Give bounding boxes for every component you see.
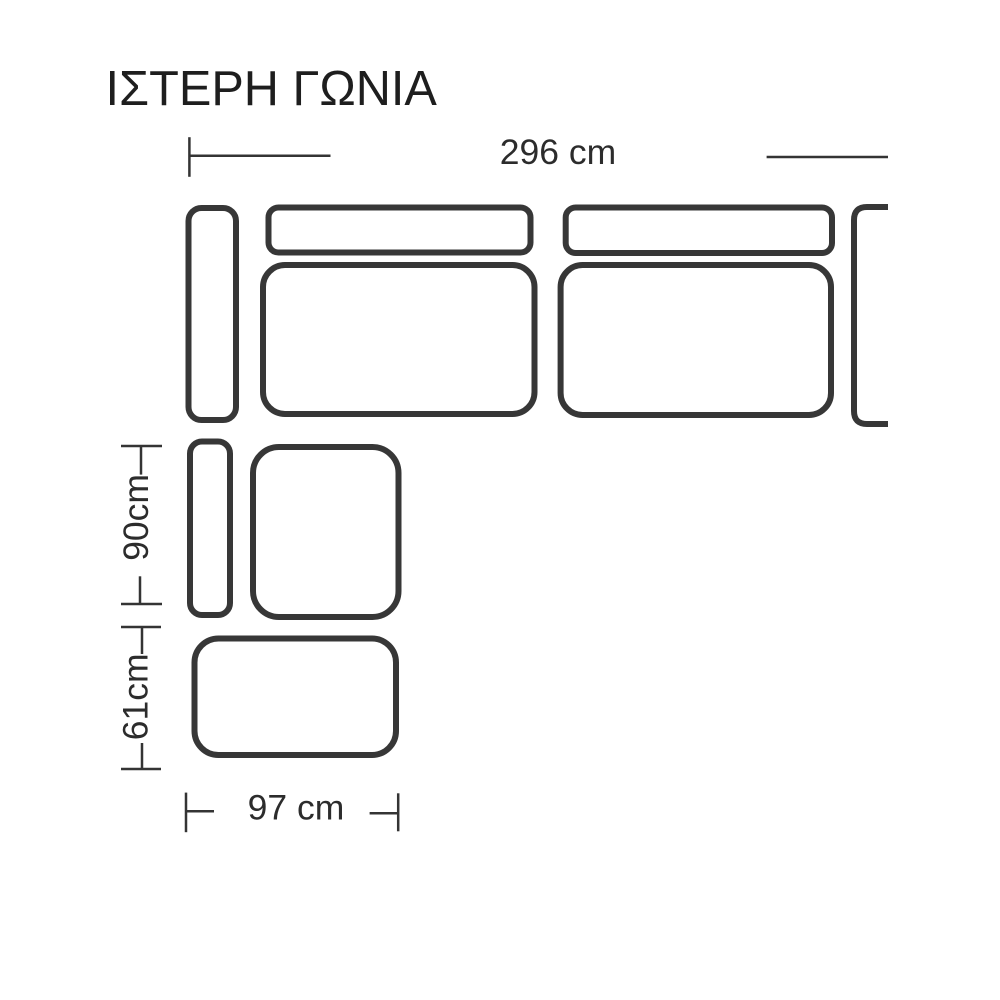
svg-text:ΙΣΤΕΡΗ ΓΩΝΙΑ: ΙΣΤΕΡΗ ΓΩΝΙΑ — [106, 62, 438, 116]
svg-text:296 cm: 296 cm — [500, 132, 616, 172]
svg-text:61cm: 61cm — [116, 653, 156, 740]
svg-text:97 cm: 97 cm — [248, 788, 345, 828]
svg-text:90cm: 90cm — [116, 474, 156, 561]
